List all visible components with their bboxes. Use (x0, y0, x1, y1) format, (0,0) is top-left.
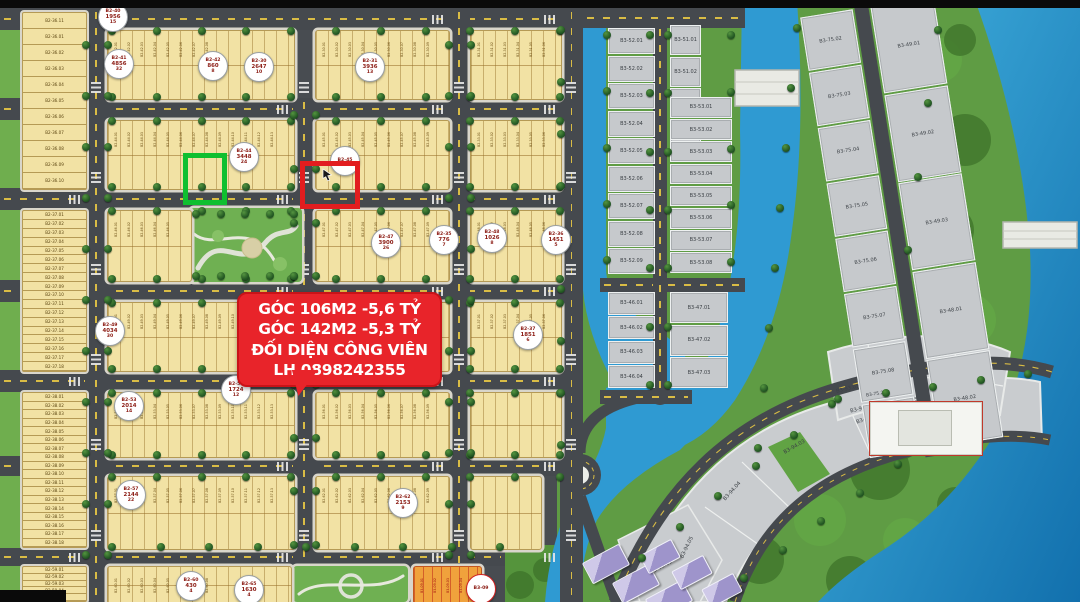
tree-icon (646, 31, 654, 39)
plot-label: B2-44.12 (257, 132, 261, 147)
tree-icon (445, 143, 453, 151)
plot-cell-B2-38.02: B2-38.02 (23, 402, 86, 411)
plot-label: B2-30.08 (413, 42, 417, 57)
tree-icon (467, 194, 475, 202)
tree-icon (557, 130, 565, 138)
tree-icon (198, 27, 206, 35)
plot-label: B2-56.08 (413, 404, 417, 419)
tree-icon (290, 272, 298, 280)
tree-icon (422, 473, 430, 481)
badge-text: 4 (189, 589, 192, 594)
road-segment (600, 390, 692, 404)
plot-label: B2-53.10 (231, 404, 235, 419)
tree-icon (467, 296, 475, 304)
tree-icon (557, 26, 565, 34)
tree-icon (108, 365, 116, 373)
block-badge-B2-42: B2-428608 (198, 51, 228, 81)
plot-label: B2-49.06 (179, 314, 183, 329)
plot-label: B2-53.08 (205, 404, 209, 419)
plot-label: B2-45.05 (374, 132, 378, 147)
crosswalk (566, 530, 576, 543)
tree-icon (377, 473, 385, 481)
bridge-icon-2 (1003, 222, 1077, 248)
plot-cell-B2-38.03: B2-38.03 (23, 410, 86, 419)
plot-block-B2-56: B2-56.01B2-56.02B2-56.03B2-56.04B2-56.05… (315, 392, 450, 458)
plot-cell-B3-53.08: B3-53.08 (670, 252, 732, 273)
tree-icon (108, 275, 116, 283)
plot-cell-B2-38.17: B2-38.17 (23, 530, 86, 539)
block-badge-B2-31: B2-31393613 (355, 52, 385, 82)
annotation-line-1: GÓC 106M2 -5,6 TỶ (258, 299, 421, 320)
plot-cell-B2-36.05: B2-36.05 (23, 93, 86, 109)
plot-cell-B2-37.04: B2-37.04 (23, 238, 86, 247)
crosswalk (432, 15, 445, 24)
tree-icon (740, 574, 748, 582)
badge-text: B3-09 (474, 586, 489, 591)
plot-cell-B2-37.10: B2-37.10 (23, 291, 86, 300)
plot-label: B3-09.04 (459, 578, 463, 593)
tree-icon (760, 384, 768, 392)
tree-icon (782, 144, 790, 152)
tree-icon (108, 389, 116, 397)
south-park (293, 566, 408, 602)
plot-cell-B2-38.12: B2-38.12 (23, 487, 86, 496)
plot-label: B2-37.03 (503, 314, 507, 329)
crosswalk (566, 264, 576, 277)
tree-icon (205, 543, 213, 551)
tree-icon (646, 323, 654, 331)
badge-text: 32 (116, 67, 122, 72)
tree-icon (198, 389, 206, 397)
plot-label: B2-60.01 (114, 578, 118, 593)
plot-label: B2-47.07 (400, 222, 404, 237)
crosswalk (544, 553, 557, 562)
tree-icon (603, 144, 611, 152)
plot-label: B2-42.05 (166, 42, 170, 57)
tree-icon (422, 93, 430, 101)
central-park (190, 208, 302, 282)
badge-text: 13 (367, 70, 373, 75)
plot-cell-B3-75.07: B3-75.07 (844, 286, 905, 348)
tree-icon (377, 389, 385, 397)
plot-cell-B2-36.09: B2-36.09 (23, 157, 86, 173)
tree-icon (377, 117, 385, 125)
plot-label: B2-47.03 (348, 222, 352, 237)
plot-label: B2-62.01 (322, 488, 326, 503)
plot-label: B2-37.01 (477, 314, 481, 329)
plot-cell-B2-37.18: B2-37.18 (23, 362, 86, 371)
plot-cell-B2-37.03: B2-37.03 (23, 229, 86, 238)
tree-icon (332, 389, 340, 397)
tree-icon (153, 473, 161, 481)
plot-cell-B3-53.02: B3-53.02 (670, 119, 732, 140)
plot-cell-B3-48.01: B3-48.01 (912, 262, 989, 359)
plot-cell-B2-38.01: B2-38.01 (23, 393, 86, 402)
left-plot-column-B2-36: B2-36.11B2-36.01B2-36.02B2-36.03B2-36.04… (22, 12, 87, 190)
plot-cell-B2-36.03: B2-36.03 (23, 61, 86, 77)
tree-icon (153, 27, 161, 35)
tree-icon (445, 347, 453, 355)
crosswalk (69, 377, 82, 386)
plot-cell-B3-52.08: B3-52.08 (608, 221, 655, 247)
plot-label: B2-31.01 (477, 42, 481, 57)
crosswalk (454, 354, 464, 367)
plot-label: B2-46.05 (166, 222, 170, 237)
plot-label: B2-62.09 (426, 488, 430, 503)
plot-label: B2-62.04 (361, 488, 365, 503)
plot-cell-B2-37.12: B2-37.12 (23, 309, 86, 318)
tree-icon (496, 543, 504, 551)
tree-icon (754, 444, 762, 452)
crosswalk (544, 15, 557, 24)
plot-label: B2-53.04 (153, 404, 157, 419)
plot-label: B2-31.03 (503, 42, 507, 57)
plot-label: B2-57.07 (192, 488, 196, 503)
plot-label: B2-37.06 (542, 314, 546, 329)
plot-cell-B3-75.06: B3-75.06 (835, 230, 896, 292)
left-plot-column-B2-37: B2-37.01B2-37.02B2-37.03B2-37.04B2-37.05… (22, 210, 87, 372)
tree-icon (332, 451, 340, 459)
plot-label: B2-45.06 (387, 132, 391, 147)
plot-label: B2-44.03 (140, 132, 144, 147)
plot-cell-B2-59.03: B2-59.03 (23, 581, 86, 588)
plot-label: B2-45.04 (361, 132, 365, 147)
plot-label: B2-44.13 (270, 132, 274, 147)
plot-block-B2-33: B2-33.01B2-33.02B2-33.03B2-33.04B2-33.05… (470, 120, 562, 190)
plot-label: B3-09.01 (420, 578, 424, 593)
plot-cell-B2-38.09: B2-38.09 (23, 462, 86, 471)
tree-icon (198, 299, 206, 307)
forest-blob (944, 24, 976, 56)
crosswalk (277, 462, 290, 471)
plot-block-B2-46: B2-46.01B2-46.02B2-46.03B2-46.04B2-46.05 (107, 210, 192, 282)
tree-icon (771, 264, 779, 272)
tree-icon (467, 245, 475, 253)
tree-icon (934, 26, 942, 34)
plot-label: B2-49.08 (205, 314, 209, 329)
plot-label: B2-49.09 (218, 314, 222, 329)
tree-icon (422, 451, 430, 459)
plot-cell-B3-52.04: B3-52.04 (608, 111, 655, 137)
tree-icon (82, 194, 90, 202)
plot-cell-B2-38.06: B2-38.06 (23, 436, 86, 445)
block-badge-B2-30: B2-30264710 (244, 52, 274, 82)
crosswalk (544, 195, 557, 204)
block-badge-B2-62: B2-6221539 (388, 488, 418, 518)
plot-cell-B3-53.01: B3-53.01 (670, 97, 732, 118)
tree-icon (467, 500, 475, 508)
plot-cell-B2-37.05: B2-37.05 (23, 247, 86, 256)
tree-icon (556, 365, 564, 373)
crosswalk (566, 439, 576, 452)
tree-icon (377, 183, 385, 191)
plot-label: B2-53.07 (192, 404, 196, 419)
tree-icon (779, 546, 787, 554)
tree-icon (603, 200, 611, 208)
plot-cell-B3-53.04: B3-53.04 (670, 164, 732, 185)
plot-label: B2-57.12 (257, 488, 261, 503)
crosswalk (91, 82, 101, 95)
plot-label: B2-44.04 (153, 132, 157, 147)
tree-icon (467, 449, 475, 457)
plot-label: B2-60.02 (127, 578, 131, 593)
plot-cell-B3-51.02: B3-51.02 (670, 57, 701, 87)
crosswalk (544, 105, 557, 114)
plot-cell-B2-37.07: B2-37.07 (23, 264, 86, 273)
plot-cell-B2-37.13: B2-37.13 (23, 318, 86, 327)
park-paths (190, 208, 302, 282)
crosswalk (432, 462, 445, 471)
tree-icon (377, 93, 385, 101)
plot-label: B2-56.05 (374, 404, 378, 419)
tree-icon (290, 541, 298, 549)
tree-icon (929, 383, 937, 391)
tree-icon (82, 500, 90, 508)
plot-cell-B3-47.01: B3-47.01 (670, 292, 728, 323)
tree-icon (104, 194, 112, 202)
tree-icon (445, 500, 453, 508)
badge-text: 26 (383, 246, 389, 251)
crosswalk (566, 354, 576, 367)
plot-label: B2-45.09 (426, 132, 430, 147)
plot-label: B2-30.06 (387, 42, 391, 57)
block-badge-B2-35: B2-357767 (429, 225, 459, 255)
tree-icon (104, 296, 112, 304)
plot-label: B2-45.02 (335, 132, 339, 147)
crosswalk (566, 82, 576, 95)
plot-label: B2-56.09 (426, 404, 430, 419)
crosswalk (91, 530, 101, 543)
tree-icon (104, 398, 112, 406)
plot-label: B2-44.06 (179, 132, 183, 147)
plot-cell-B3-53.06: B3-53.06 (670, 208, 732, 229)
plot-cell-B3-75.04: B3-75.04 (818, 120, 879, 182)
top-black-bar (0, 0, 1080, 8)
site-plan-map: B3-94.01B3-94.02B3-94.03B3-94.04B3-94.05… (0, 0, 1080, 602)
tree-icon (198, 451, 206, 459)
plot-label: B2-46.04 (153, 222, 157, 237)
badge-text: 8 (211, 69, 214, 74)
tree-icon (603, 256, 611, 264)
plot-label: B2-47.01 (322, 222, 326, 237)
plot-label: B2-44.09 (218, 132, 222, 147)
tree-icon (82, 551, 90, 559)
tree-icon (445, 194, 453, 202)
plot-cell-B3-49.03: B3-49.03 (898, 173, 975, 270)
crosswalk (91, 354, 101, 367)
plot-cell-B2-37.06: B2-37.06 (23, 255, 86, 264)
tree-icon (332, 275, 340, 283)
badge-text: 7 (442, 243, 445, 248)
badge-text: 10 (256, 70, 262, 75)
plot-cell-B2-38.05: B2-38.05 (23, 427, 86, 436)
tree-icon (266, 210, 274, 218)
plot-cell-B2-36.02: B2-36.02 (23, 45, 86, 61)
badge-text: 6 (526, 338, 529, 343)
tree-icon (727, 258, 735, 266)
tree-icon (856, 489, 864, 497)
plot-cell-B3-52.02: B3-52.02 (608, 56, 655, 82)
tree-icon (790, 431, 798, 439)
tree-icon (603, 31, 611, 39)
block-badge-B2-47: B2-47390026 (371, 228, 401, 258)
tree-icon (104, 41, 112, 49)
block-badge-B2-37: B2-3718516 (513, 320, 543, 350)
plot-label: B2-46.02 (127, 222, 131, 237)
block-badge-B2-44: B2-44344824 (229, 142, 259, 172)
annotation-line-4: LH 0898242355 (273, 360, 405, 381)
tree-icon (153, 275, 161, 283)
tree-icon (290, 434, 298, 442)
tree-icon (332, 27, 340, 35)
tree-icon (904, 246, 912, 254)
plot-cell-B2-37.02: B2-37.02 (23, 220, 86, 229)
crosswalk (299, 82, 309, 95)
plot-label: B2-56.04 (361, 404, 365, 419)
annotation-line-3: ĐỐI DIỆN CÔNG VIÊN (251, 340, 427, 361)
badge-text: 8 (490, 241, 493, 246)
plot-label: B2-33.01 (477, 132, 481, 147)
plot-label: B2-33.05 (529, 132, 533, 147)
tree-icon (556, 275, 564, 283)
plot-cell-B2-37.09: B2-37.09 (23, 282, 86, 291)
tree-icon (914, 173, 922, 181)
block-badge-B2-41: B2-41485632 (104, 49, 134, 79)
tree-icon (290, 165, 298, 173)
tree-icon (157, 543, 165, 551)
cursor-icon (322, 168, 333, 181)
tree-icon (312, 541, 320, 549)
block-badge-B2-60: B2-604304 (176, 571, 206, 601)
tree-icon (82, 296, 90, 304)
tree-icon (104, 500, 112, 508)
badge-text: 4 (247, 593, 250, 598)
plot-label: B2-49.04 (153, 314, 157, 329)
gray-block-B3-46: B3-46.01B3-46.02B3-46.03B3-46.04 (608, 292, 655, 388)
plot-label: B2-57.04 (153, 488, 157, 503)
tree-icon (445, 398, 453, 406)
crosswalk (454, 82, 464, 95)
tree-icon (198, 365, 206, 373)
plot-cell-B2-59.01: B2-59.01 (23, 567, 86, 574)
tree-icon (646, 148, 654, 156)
tree-icon (556, 93, 564, 101)
tree-icon (108, 473, 116, 481)
tree-icon (422, 275, 430, 283)
plot-cell-B3-75.02: B3-75.02 (800, 9, 861, 71)
tree-icon (82, 92, 90, 100)
plot-cell-B3-49.01: B3-49.01 (870, 0, 947, 93)
plot-label: B2-57.05 (166, 488, 170, 503)
plot-label: B2-47.02 (335, 222, 339, 237)
tree-icon (556, 299, 564, 307)
tree-icon (351, 543, 359, 551)
plot-label: B2-33.06 (542, 132, 546, 147)
tree-icon (422, 183, 430, 191)
tree-icon (556, 473, 564, 481)
plot-label: B2-60.03 (140, 578, 144, 593)
plot-label: B2-31.02 (490, 42, 494, 57)
tree-icon (727, 88, 735, 96)
plot-label: B2-45.03 (348, 132, 352, 147)
plot-label: B2-57.06 (179, 488, 183, 503)
tree-icon (752, 462, 760, 470)
tree-icon (834, 395, 842, 403)
tree-icon (104, 143, 112, 151)
park-paths-2 (293, 566, 408, 602)
tree-icon (422, 207, 430, 215)
tree-icon (82, 41, 90, 49)
plot-label: B2-57.13 (270, 488, 274, 503)
tree-icon (82, 449, 90, 457)
tree-icon (1024, 370, 1032, 378)
tree-icon (638, 554, 646, 562)
crosswalk (91, 264, 101, 277)
tree-icon (557, 441, 565, 449)
plot-label: B2-60.04 (153, 578, 157, 593)
plot-label: B2-53.13 (270, 404, 274, 419)
plot-label: B2-53.12 (257, 404, 261, 419)
plot-cell-B3-47.03: B3-47.03 (670, 357, 728, 388)
tree-icon (556, 207, 564, 215)
block-badge-B2-65: B2-6516304 (234, 575, 264, 602)
tree-icon (467, 41, 475, 49)
tree-icon (727, 145, 735, 153)
plot-block (470, 392, 562, 458)
crosswalk (544, 462, 557, 471)
plot-label: B2-30.03 (348, 42, 352, 57)
plot-label: B2-33.03 (503, 132, 507, 147)
tree-icon (445, 551, 453, 559)
plot-label: B2-45.08 (413, 132, 417, 147)
plot-label: B2-45.01 (322, 132, 326, 147)
plot-label: B2-42.07 (192, 42, 196, 57)
crosswalk (299, 530, 309, 543)
plot-cell-B2-38.13: B2-38.13 (23, 496, 86, 505)
tree-icon (153, 207, 161, 215)
gray-block-B3-53: B3-53.01B3-53.02B3-53.03B3-53.04B3-53.05… (670, 97, 732, 273)
plot-cell-B2-36.08: B2-36.08 (23, 141, 86, 157)
plot-cell-B2-37.15: B2-37.15 (23, 335, 86, 344)
tree-icon (664, 148, 672, 156)
annotation-line-2: GÓC 142M2 -5,3 TỶ (258, 319, 421, 340)
plot-cell-B3-47.02: B3-47.02 (670, 325, 728, 356)
tree-icon (290, 210, 298, 218)
tree-icon (422, 117, 430, 125)
plot-label: B2-49.07 (192, 314, 196, 329)
plot-label: B2-44.02 (127, 132, 131, 147)
plot-label: B2-31.06 (542, 42, 546, 57)
plot-block-B2-31: B2-31.01B2-31.02B2-31.03B2-31.04B2-31.05… (470, 30, 562, 100)
tree-icon (445, 92, 453, 100)
plot-cell-B3-49.02: B3-49.02 (884, 85, 961, 182)
crosswalk (432, 195, 445, 204)
plot-label: B2-62.02 (335, 488, 339, 503)
plot-label: B2-31.05 (529, 42, 533, 57)
plot-cell-B2-37.01: B2-37.01 (23, 211, 86, 220)
tree-icon (467, 551, 475, 559)
tree-icon (266, 272, 274, 280)
plot-cell-B3-53.07: B3-53.07 (670, 230, 732, 251)
plot-label: B2-44.08 (205, 132, 209, 147)
plot-label: B2-53.06 (179, 404, 183, 419)
plot-cell-B2-36.10: B2-36.10 (23, 173, 86, 189)
tree-icon (104, 449, 112, 457)
plot-label: B2-42.06 (179, 42, 183, 57)
plot-cell-B2-36.04: B2-36.04 (23, 77, 86, 93)
tree-icon (467, 398, 475, 406)
plot-label: B2-56.01 (322, 404, 326, 419)
